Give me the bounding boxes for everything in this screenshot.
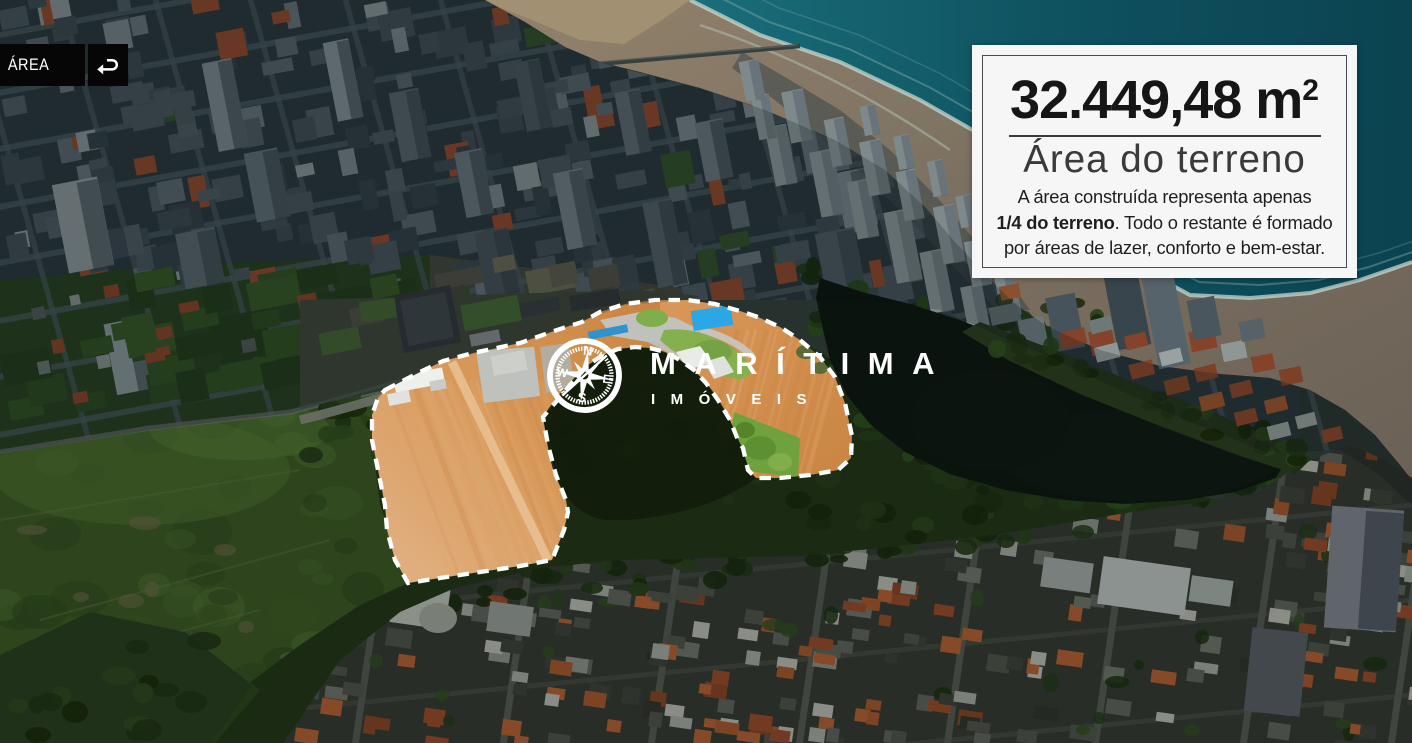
svg-text:MARÍTIMA: MARÍTIMA	[650, 346, 953, 381]
svg-text:IMÓVEIS: IMÓVEIS	[651, 390, 822, 408]
